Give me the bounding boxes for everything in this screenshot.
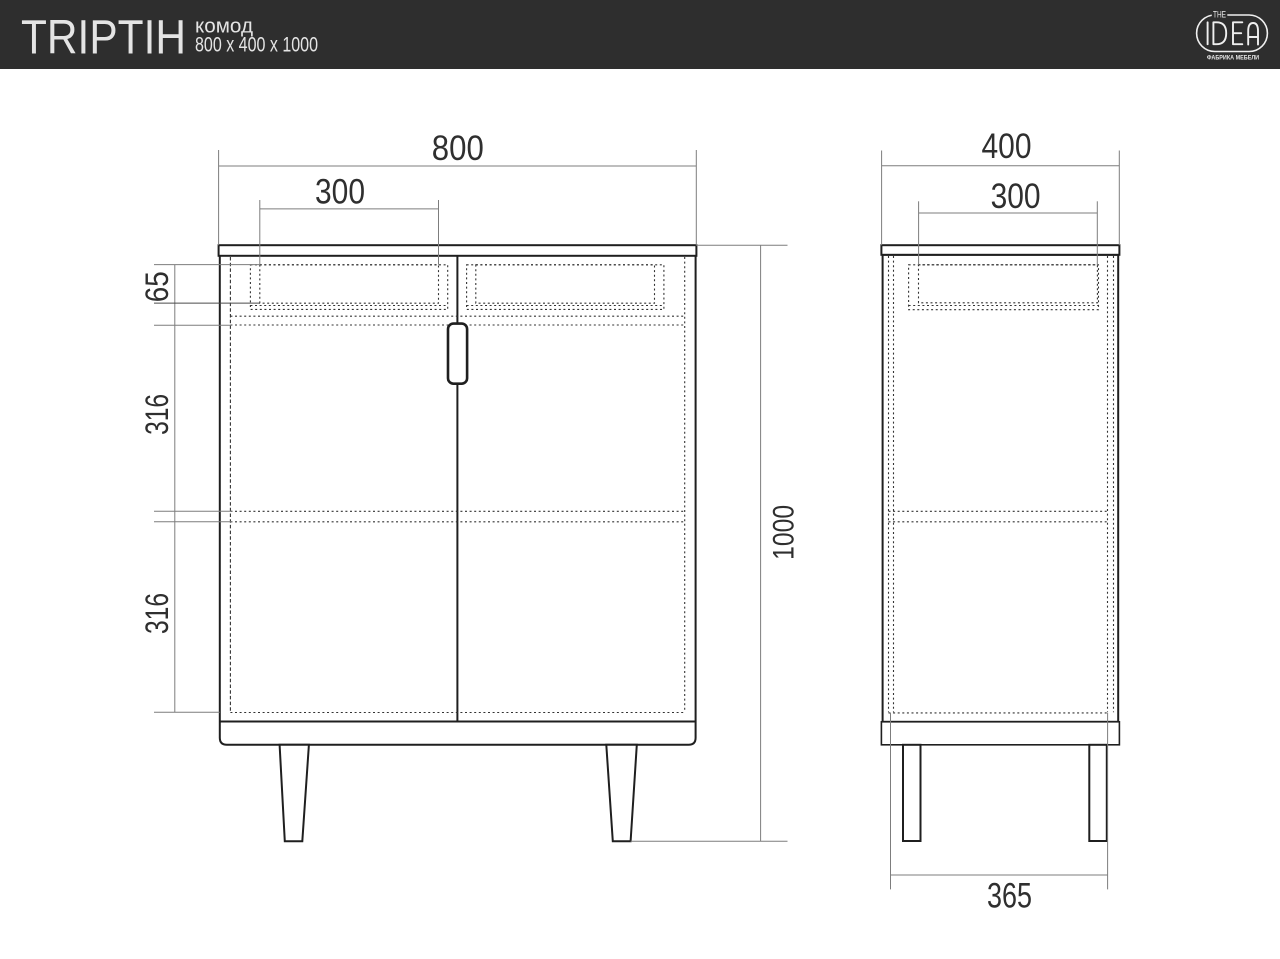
- svg-text:800 x 400 x 1000: 800 x 400 x 1000: [195, 34, 318, 57]
- svg-text:316: 316: [139, 593, 175, 634]
- svg-text:300: 300: [315, 173, 365, 212]
- svg-text:316: 316: [139, 394, 175, 435]
- svg-text:65: 65: [139, 271, 175, 302]
- svg-text:365: 365: [987, 877, 1032, 916]
- svg-text:800: 800: [432, 129, 484, 168]
- svg-text:1000: 1000: [768, 505, 801, 560]
- svg-text:ФАБРИКА МЕБЕЛИ: ФАБРИКА МЕБЕЛИ: [1207, 55, 1260, 62]
- svg-text:400: 400: [982, 127, 1032, 166]
- svg-text:THE: THE: [1213, 10, 1226, 20]
- svg-text:TRIPTIH: TRIPTIH: [21, 12, 186, 65]
- svg-text:300: 300: [991, 177, 1041, 216]
